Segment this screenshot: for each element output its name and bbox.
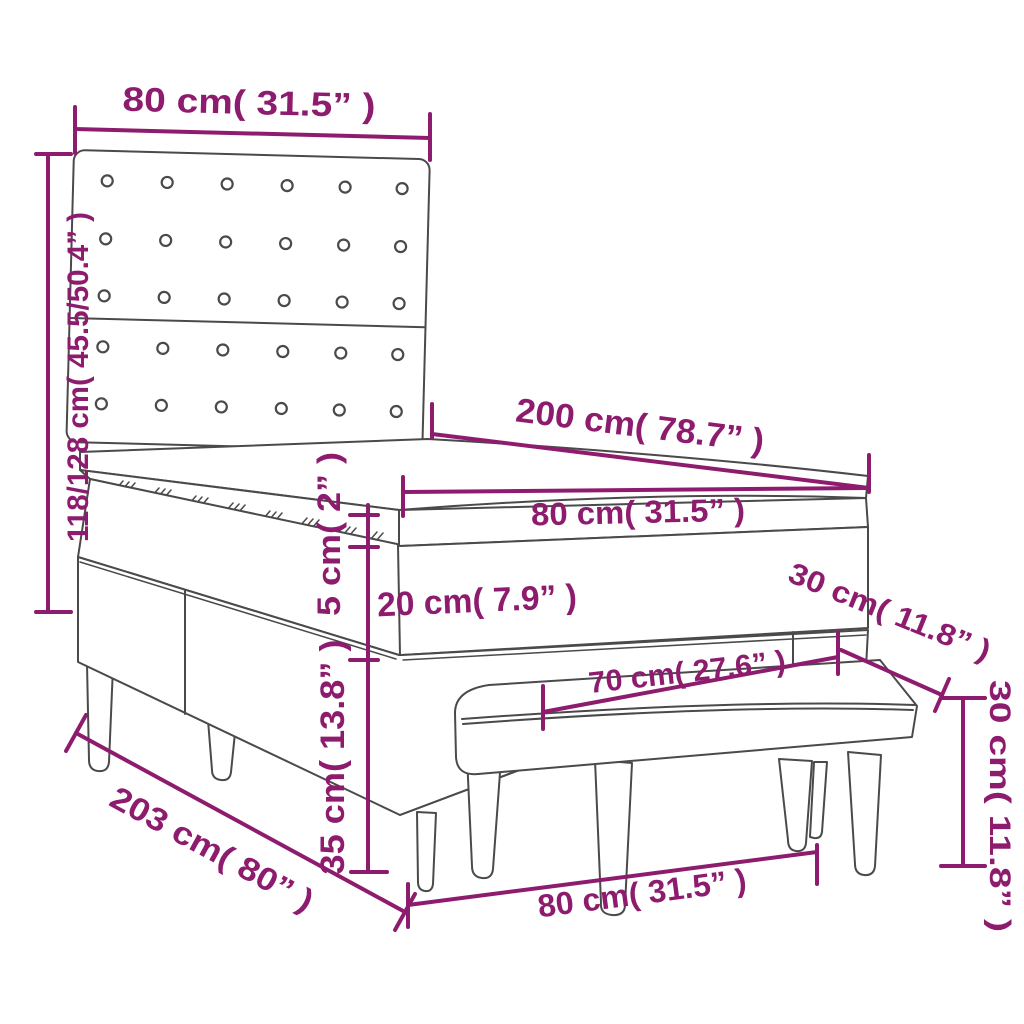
bench-leg (810, 762, 827, 838)
product-dimension-image: 80 cm( 31.5” ) 118/128 cm( 45.5/50.4” ) … (0, 0, 1024, 1024)
dim-headboard-height-label: 118/128 cm( 45.5/50.4” ) (62, 212, 95, 542)
headboard-panel (66, 150, 430, 451)
headboard (66, 150, 430, 451)
dim-bench-height-label: 30 cm( 11.8” ) (983, 680, 1016, 932)
dim-topper-thickness-label: 5 cm( 2” ) (311, 452, 347, 616)
dim-headboard-width-label: 80 cm( 31.5” ) (122, 81, 376, 126)
dim-mattress-width-label: 80 cm( 31.5” ) (531, 492, 746, 533)
dimension-diagram-svg: 80 cm( 31.5” ) 118/128 cm( 45.5/50.4” ) … (0, 0, 1024, 1024)
bed-leg (87, 664, 113, 771)
bed-leg (417, 812, 436, 891)
bench-leg (848, 752, 881, 875)
dim-bench-width-label: 80 cm( 31.5” ) (536, 862, 749, 925)
dim-base-height-label: 35 cm( 13.8” ) (314, 640, 352, 875)
dim-bench-height-line (941, 698, 985, 866)
bench (455, 660, 917, 878)
bench-leg (779, 759, 812, 851)
